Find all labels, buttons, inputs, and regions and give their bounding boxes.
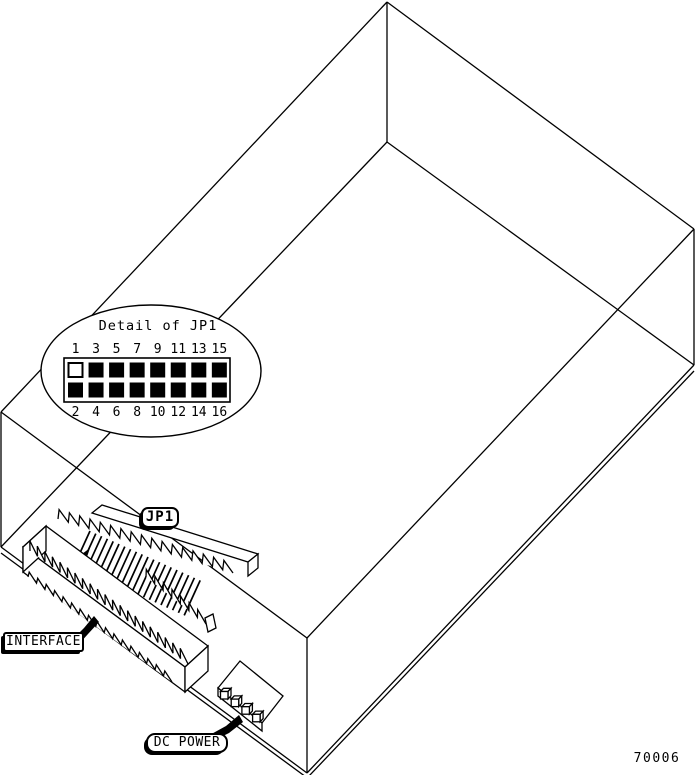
pin-numbers-bottom: 246810121416 bbox=[72, 405, 228, 420]
jp1-detail-callout: Detail of JP1 13579111315 246810121416 bbox=[41, 305, 261, 437]
callout-title: Detail of JP1 bbox=[99, 318, 218, 334]
svg-text:8: 8 bbox=[133, 405, 141, 420]
interface-label: INTERFACE bbox=[3, 632, 84, 652]
svg-text:16: 16 bbox=[212, 405, 228, 420]
dc-power-label: DC POWER bbox=[146, 733, 228, 753]
drawing-canvas: Detail of JP1 13579111315 246810121416 7… bbox=[0, 0, 696, 775]
svg-text:10: 10 bbox=[150, 405, 166, 420]
connector-area bbox=[23, 505, 283, 731]
svg-text:15: 15 bbox=[212, 342, 228, 357]
svg-text:4: 4 bbox=[92, 405, 100, 420]
svg-text:6: 6 bbox=[113, 405, 121, 420]
svg-text:5: 5 bbox=[113, 342, 121, 357]
jp1-label: JP1 bbox=[141, 507, 179, 528]
svg-text:2: 2 bbox=[72, 405, 80, 420]
svg-text:3: 3 bbox=[92, 342, 100, 357]
svg-text:11: 11 bbox=[170, 342, 186, 357]
svg-text:1: 1 bbox=[72, 342, 80, 357]
svg-text:13: 13 bbox=[191, 342, 207, 357]
svg-text:7: 7 bbox=[133, 342, 141, 357]
svg-text:9: 9 bbox=[154, 342, 162, 357]
figure-number: 70006 bbox=[634, 751, 681, 766]
svg-text:12: 12 bbox=[170, 405, 186, 420]
technical-figure: Detail of JP1 13579111315 246810121416 7… bbox=[0, 0, 696, 775]
svg-text:14: 14 bbox=[191, 405, 207, 420]
